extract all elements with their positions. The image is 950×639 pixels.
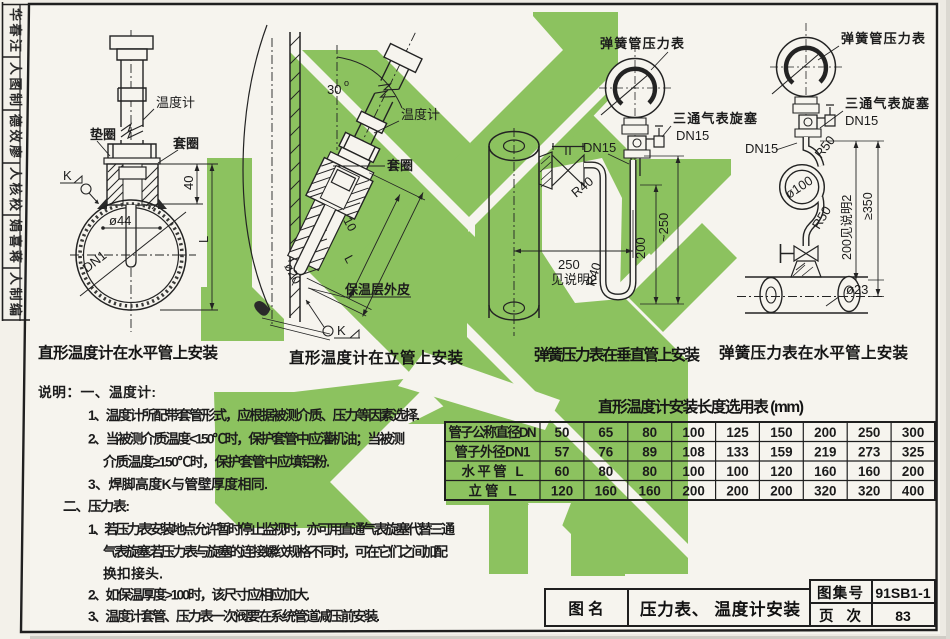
svg-text:说明：一、温度计:: 说明：一、温度计: (38, 384, 156, 400)
svg-text:200: 200 (682, 484, 704, 499)
svg-text:≥350: ≥350 (861, 192, 875, 220)
svg-text:套圈: 套圈 (172, 136, 199, 151)
svg-text:保温层外皮: 保温层外皮 (344, 282, 410, 297)
svg-text:L: L (196, 236, 211, 243)
svg-text:80: 80 (598, 464, 613, 479)
svg-text:图 名: 图 名 (568, 599, 603, 618)
svg-text:弹簧压力表在垂直管上安装: 弹簧压力表在垂直管上安装 (534, 345, 700, 364)
svg-text:320: 320 (858, 484, 880, 499)
svg-text:160: 160 (814, 464, 836, 479)
svg-text:2、当被测介质温度<150℃时，保护套管中应灌机油；当被测: 2、当被测介质温度<150℃时，保护套管中应灌机油；当被测 (88, 431, 405, 448)
svg-text:120: 120 (770, 464, 792, 479)
svg-text:1、温度计所配带套管形式，应根据被测介质、压力等因素选择.: 1、温度计所配带套管形式，应根据被测介质、压力等因素选择. (88, 407, 420, 423)
svg-text:人核校: 人核校 (8, 167, 23, 212)
svg-text:垫圈: 垫圈 (90, 127, 116, 142)
svg-text:压力表、 温度计安装: 压力表、 温度计安装 (640, 599, 801, 619)
svg-text:气表旋塞.若压力表与旋塞的连接螺纹规格不同时，可在它们之间加: 气表旋塞.若压力表与旋塞的连接螺纹规格不同时，可在它们之间加配 (102, 544, 448, 560)
svg-text:250: 250 (858, 425, 880, 440)
svg-text:160: 160 (595, 484, 617, 499)
svg-text:50: 50 (555, 425, 570, 440)
svg-text:219: 219 (814, 445, 836, 460)
svg-text:DN15: DN15 (745, 141, 778, 156)
svg-text:57: 57 (555, 445, 570, 460)
svg-text:三通气表旋塞: 三通气表旋塞 (673, 111, 758, 126)
svg-text:ø44: ø44 (109, 213, 131, 228)
svg-text:160: 160 (858, 464, 880, 479)
svg-text:K: K (63, 168, 72, 183)
svg-text:DN15: DN15 (676, 128, 709, 143)
svg-text:200: 200 (770, 484, 792, 499)
svg-text:60: 60 (555, 464, 570, 479)
svg-text:100: 100 (726, 464, 748, 479)
svg-text:30: 30 (327, 82, 341, 97)
svg-text:图集号: 图集号 (817, 584, 863, 602)
svg-text:325: 325 (902, 445, 925, 460)
svg-text:套圈: 套圈 (386, 158, 413, 173)
svg-text:直形温度计在水平管上安装: 直形温度计在水平管上安装 (38, 343, 218, 362)
svg-text:三通气表旋塞: 三通气表旋塞 (845, 96, 930, 111)
svg-text:华春汪: 华春汪 (8, 8, 23, 52)
svg-text:40: 40 (181, 176, 196, 190)
svg-text:ø23: ø23 (846, 282, 868, 297)
svg-text:250: 250 (558, 257, 580, 272)
svg-text:温度计: 温度计 (401, 107, 440, 122)
svg-text:DN15: DN15 (583, 140, 616, 155)
svg-text:页 次: 页 次 (819, 607, 862, 625)
svg-text:80: 80 (642, 464, 657, 479)
svg-text:见说明2: 见说明2 (551, 272, 597, 287)
svg-text:200见说明2: 200见说明2 (839, 195, 854, 260)
svg-text:120: 120 (551, 484, 573, 499)
svg-text:立管 L: 立管 L (469, 483, 517, 499)
svg-text:100: 100 (682, 464, 704, 479)
svg-text:德效廖: 德效廖 (8, 114, 23, 158)
svg-text:159: 159 (770, 445, 792, 460)
svg-text:100: 100 (682, 425, 704, 440)
svg-text:273: 273 (858, 445, 880, 460)
svg-text:~250: ~250 (656, 213, 671, 242)
svg-text:200: 200 (726, 484, 748, 499)
svg-text:160: 160 (639, 484, 661, 499)
svg-text:直形温度计安装长度选用表 (mm): 直形温度计安装长度选用表 (mm) (598, 397, 804, 416)
svg-text:弹簧压力表在水平管上安装: 弹簧压力表在水平管上安装 (719, 343, 908, 362)
svg-text:80: 80 (642, 425, 657, 440)
svg-text:管子外径DN1: 管子外径DN1 (455, 444, 532, 460)
svg-text:125: 125 (726, 425, 749, 440)
svg-text:换扣接头.: 换扣接头. (103, 566, 163, 582)
svg-text:89: 89 (642, 445, 657, 460)
svg-text:介质温度≥150℃时，保护套管中应填铝粉.: 介质温度≥150℃时，保护套管中应填铝粉. (102, 454, 330, 470)
svg-text:300: 300 (902, 425, 924, 440)
svg-text:3、温度计套管、压力表一次阀要在系统管道减压前安装.: 3、温度计套管、压力表一次阀要在系统管道减压前安装. (88, 608, 380, 624)
svg-text:DN15: DN15 (845, 113, 878, 128)
svg-text:200: 200 (633, 237, 648, 259)
svg-text:400: 400 (902, 484, 924, 499)
svg-text:K: K (337, 323, 346, 338)
svg-text:娟喜蒋: 娟喜蒋 (8, 219, 23, 263)
svg-text:弹簧管压力表: 弹簧管压力表 (600, 36, 685, 51)
svg-text:83: 83 (895, 608, 911, 624)
svg-text:133: 133 (726, 445, 748, 460)
svg-text:150: 150 (770, 425, 792, 440)
svg-text:温度计: 温度计 (156, 95, 195, 110)
svg-text:65: 65 (598, 425, 613, 440)
svg-text:3、焊脚高度K与管壁厚度相同.: 3、焊脚高度K与管壁厚度相同. (88, 476, 268, 492)
svg-text:200: 200 (902, 464, 924, 479)
svg-text:人图制: 人图制 (8, 62, 23, 106)
svg-text:直形温度计在立管上安装: 直形温度计在立管上安装 (289, 348, 463, 367)
svg-text:2、如保温厚度>100时，该尺寸应相应加大.: 2、如保温厚度>100时，该尺寸应相应加大. (88, 587, 310, 603)
svg-text:320: 320 (814, 484, 836, 499)
svg-text:91SB1-1: 91SB1-1 (875, 585, 930, 601)
svg-text:108: 108 (682, 445, 705, 460)
svg-text:o: o (344, 78, 349, 88)
svg-text:76: 76 (598, 445, 613, 460)
svg-text:二、压力表:: 二、压力表: (63, 498, 130, 514)
svg-text:弹簧管压力表: 弹簧管压力表 (841, 31, 926, 46)
svg-text:人制编: 人制编 (8, 272, 23, 316)
svg-text:管子公称直径DN: 管子公称直径DN (449, 424, 537, 440)
svg-text:1、若压力表安装地点允许暂时停止监视时，亦可用直通气表旋塞代: 1、若压力表安装地点允许暂时停止监视时，亦可用直通气表旋塞代替三通 (88, 521, 455, 537)
svg-text:200: 200 (814, 425, 836, 440)
